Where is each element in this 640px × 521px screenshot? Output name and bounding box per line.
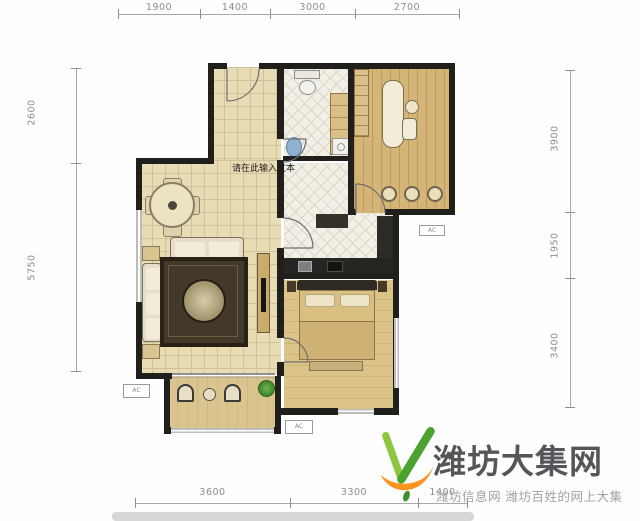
entry-door-arc (227, 69, 259, 101)
watermark-title: 潍坊大集网 (433, 442, 603, 482)
study-door-arc (356, 184, 385, 213)
kitchen-door-arc (283, 218, 313, 248)
logo-leaf (402, 490, 411, 503)
text-input-placeholder[interactable]: 请在此输入文本 (232, 164, 295, 174)
ac-platform-bottom: AC (285, 420, 313, 434)
weifang-daji-logo-icon (379, 426, 435, 508)
watermark-subtitle: 潍坊信息网 潍坊百姓的网上大集 (436, 486, 622, 505)
bedroom-door-arc (284, 338, 308, 362)
ac-platform-right: AC (419, 225, 445, 236)
floorplan-canvas: 1900 1400 3000 2700 3600 3300 1400 2600 … (0, 0, 640, 521)
ac-platform-left: AC (123, 384, 150, 398)
bath-door-arc (283, 139, 306, 162)
logo-green-stroke-dark (401, 431, 430, 479)
logo-green-stroke-light (386, 436, 402, 480)
